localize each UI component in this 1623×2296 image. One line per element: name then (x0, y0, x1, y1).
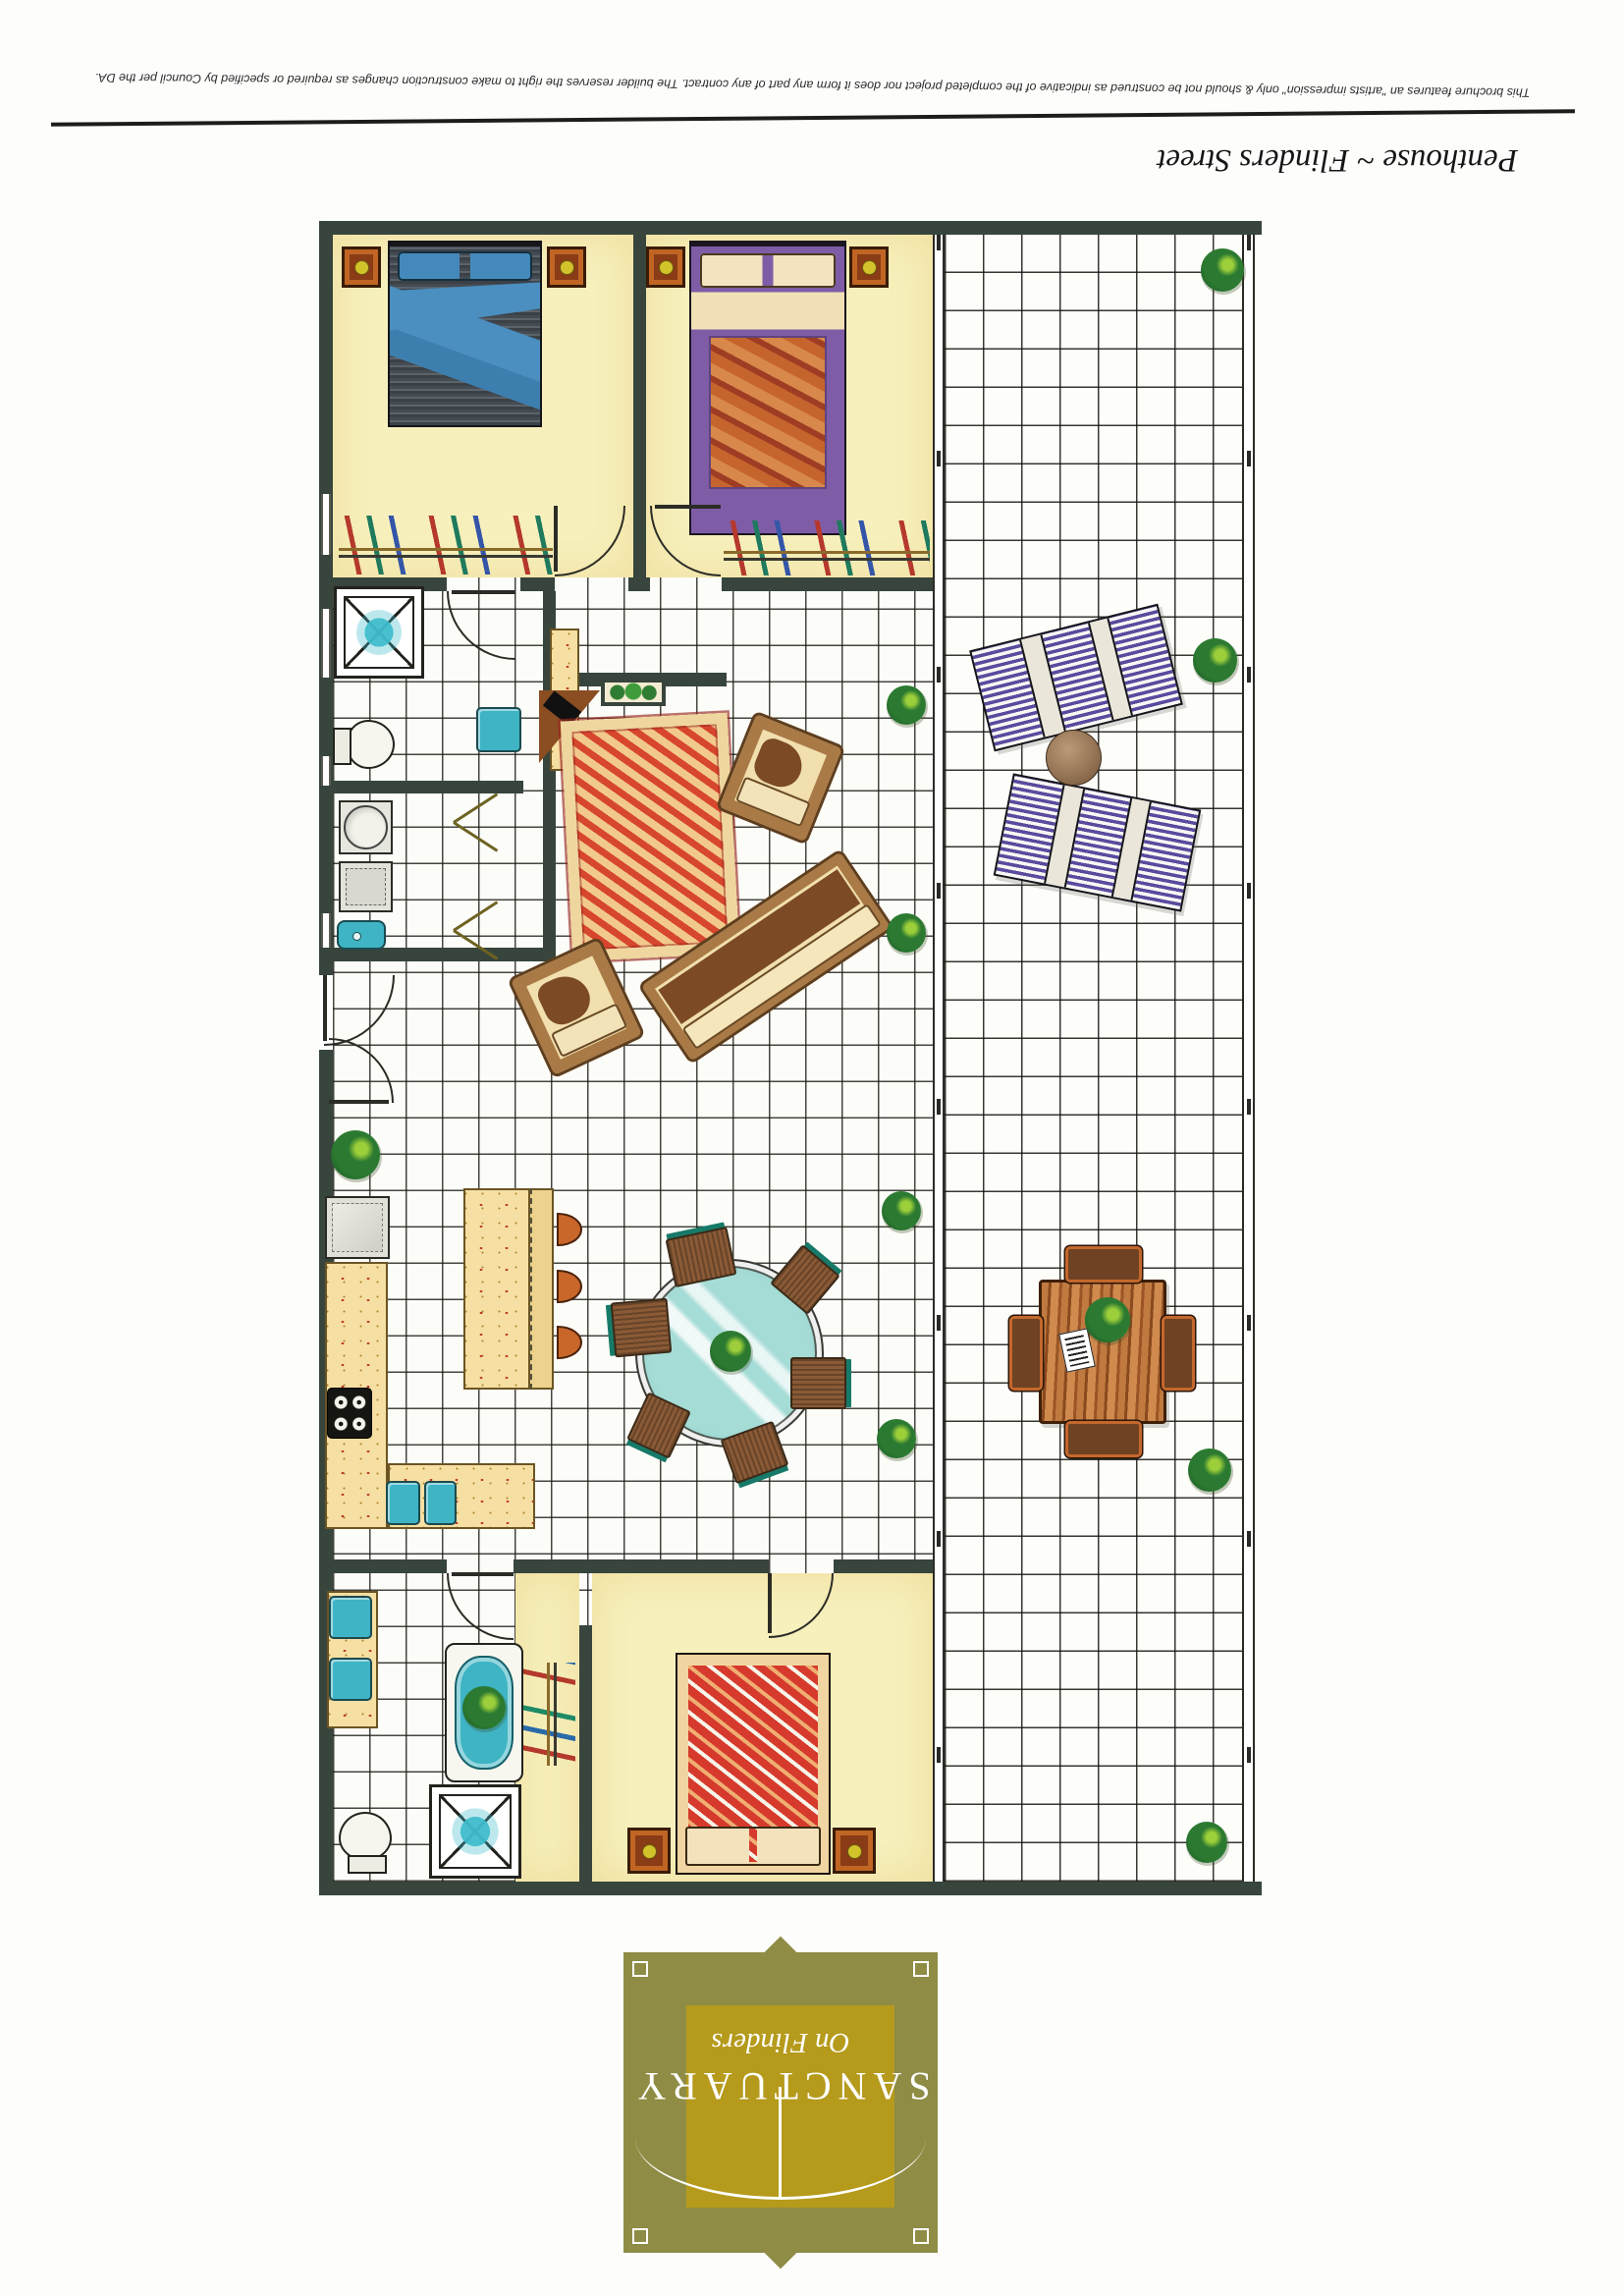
outdoor-chair (1009, 1316, 1043, 1391)
dining-chair (790, 1357, 846, 1409)
tree (1186, 1822, 1227, 1863)
window-wall (933, 235, 945, 1882)
master-bed (676, 1653, 831, 1875)
wall (319, 1882, 1262, 1895)
basin (329, 1596, 372, 1639)
wall (333, 781, 523, 793)
divider-line (51, 109, 1575, 127)
bed-3 (689, 241, 846, 535)
outdoor-chair (1065, 1246, 1142, 1283)
wall (834, 1559, 933, 1573)
shower (429, 1784, 521, 1879)
basin (329, 1658, 372, 1701)
laundry-tub (337, 920, 386, 950)
wall (722, 577, 933, 591)
basin (476, 707, 521, 752)
bath-plant (462, 1686, 506, 1729)
terrace-balustrade (1242, 235, 1255, 1882)
wall (628, 577, 650, 591)
tree (1201, 248, 1244, 292)
sink (424, 1481, 457, 1525)
pot-plant (877, 1419, 916, 1458)
toilet (339, 1812, 392, 1861)
wall (520, 577, 555, 591)
cupboard-doors (449, 798, 533, 844)
pot-plant (331, 1130, 380, 1179)
wardrobe-rail (520, 1663, 575, 1766)
window (321, 756, 331, 786)
washing-machine (339, 800, 393, 854)
cooktop (327, 1388, 372, 1439)
outdoor-chair (1065, 1421, 1142, 1457)
logo-wordmark: SANCTUARY (623, 2063, 938, 2109)
shower (334, 586, 424, 679)
cupboard-doors (449, 906, 533, 952)
wardrobe-rail (339, 516, 553, 574)
tree (1188, 1449, 1231, 1492)
bedside-table (342, 246, 381, 288)
table-plant (710, 1331, 751, 1372)
logo-corner-ornament (632, 1961, 648, 1977)
terrace-floor (945, 235, 1245, 1882)
bedside-table (833, 1828, 876, 1874)
logo-corner-ornament (913, 1961, 929, 1977)
island-bench (463, 1188, 530, 1390)
pot-plant (887, 685, 926, 725)
logo-tagline: On Flinders (623, 2026, 938, 2058)
breakfast-bar (530, 1188, 554, 1390)
sink (386, 1481, 420, 1525)
wall (514, 1559, 769, 1573)
window (321, 494, 331, 555)
bed-2 (388, 241, 542, 427)
fridge (325, 1196, 390, 1259)
pot-plant (882, 1191, 921, 1230)
floor-plan (319, 221, 1262, 1895)
window (321, 913, 331, 948)
disclaimer-text: This brochure features an "artists impre… (54, 69, 1571, 100)
logo-corner-ornament (913, 2228, 929, 2244)
wall (633, 235, 646, 591)
bedside-table (849, 246, 889, 288)
dryer (339, 861, 393, 912)
bedside-table (627, 1828, 671, 1874)
table-plant (1085, 1297, 1130, 1342)
sanctuary-logo: SANCTUARY On Flinders (623, 1952, 938, 2253)
page-title: Penthouse ~ Flinders Street (1131, 141, 1543, 178)
wardrobe-rail (724, 520, 930, 575)
wall (319, 221, 1262, 235)
planter-shelf (601, 679, 666, 706)
dining-chair (611, 1298, 673, 1358)
window (321, 609, 331, 678)
bedside-table (547, 246, 586, 288)
outdoor-chair (1162, 1316, 1195, 1391)
wall (579, 1625, 592, 1882)
side-table (1046, 730, 1102, 786)
scanned-brochure-page: This brochure features an "artists impre… (0, 0, 1623, 2296)
rug (561, 713, 740, 962)
wall (333, 1559, 447, 1573)
pot-plant (887, 913, 926, 953)
tree (1193, 638, 1237, 683)
logo-corner-ornament (632, 2228, 648, 2244)
bedside-table (646, 246, 685, 288)
